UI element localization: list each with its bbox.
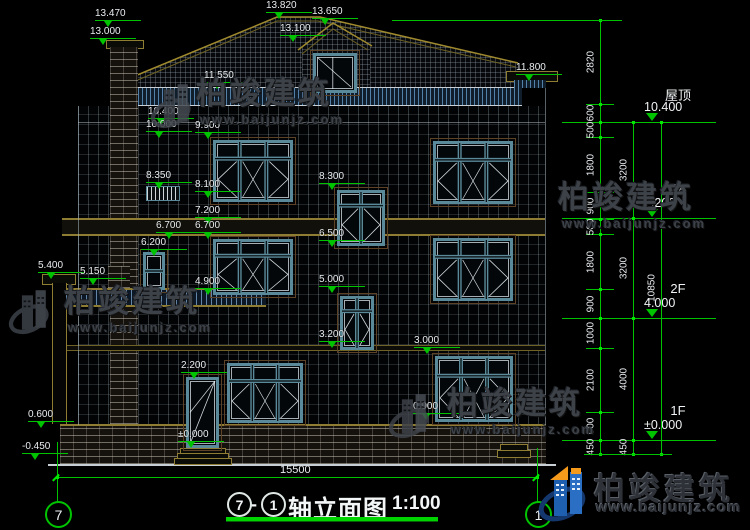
- dim-value: 500: [586, 122, 597, 139]
- dim-value: 900: [586, 198, 597, 215]
- watermark-logo-icon: [388, 384, 438, 442]
- dim-value: 500: [586, 219, 597, 236]
- floor-triangle-icon: [646, 113, 658, 121]
- window: [210, 236, 296, 298]
- title-bubble-1-label: 1: [270, 497, 278, 513]
- floor-triangle-icon: [646, 209, 658, 217]
- dim-node: [599, 439, 602, 442]
- dim-node: [660, 121, 663, 124]
- window: [310, 50, 360, 96]
- dim-node: [599, 136, 602, 139]
- louver-vent: [146, 186, 180, 201]
- drawing-scale: 1:100: [392, 493, 441, 515]
- window: [432, 353, 516, 425]
- dim-value: 900: [586, 418, 597, 435]
- title-axis-bubble-1: 1: [261, 492, 286, 517]
- elevation-drawing-canvas: 13.47013.00013.82013.65013.10011.55011.8…: [0, 0, 750, 530]
- window: [224, 360, 306, 426]
- elevation-line: [90, 38, 136, 39]
- elevation-value: 13.000: [90, 27, 136, 37]
- title-bubble-7-label: 7: [236, 497, 244, 513]
- dim-node: [599, 347, 602, 350]
- elevation-line: [95, 20, 141, 21]
- dim-node: [599, 103, 602, 106]
- belt-course-2f: [62, 345, 545, 351]
- axis-bubble-7-label: 7: [55, 507, 63, 523]
- dim-line: [392, 20, 622, 21]
- right-step-2: [497, 450, 531, 458]
- floor-label: 1F: [640, 403, 716, 418]
- elevation-marker: 13.820: [266, 1, 312, 19]
- window: [210, 137, 296, 205]
- facade-right-edge: [545, 88, 546, 425]
- dim-chain-line: [661, 122, 662, 454]
- title-axis-bubble-7: 7: [227, 492, 252, 517]
- dim-value: 900: [586, 296, 597, 313]
- dim-value: 2820: [586, 51, 597, 73]
- window: [430, 138, 516, 207]
- dim-chain-line: [633, 122, 634, 454]
- dim-line: [584, 454, 672, 455]
- dim-node: [599, 121, 602, 124]
- floor-triangle-icon: [646, 431, 658, 439]
- floor-triangle-icon: [646, 309, 658, 317]
- axis-bubble-7: 7: [45, 501, 72, 528]
- dim-node: [56, 476, 59, 479]
- belt-course-3f: [62, 218, 545, 236]
- dim-line: [57, 477, 538, 478]
- floor-elevation: 10.400: [644, 100, 682, 114]
- dim-value: 450: [586, 439, 597, 456]
- right-parapet: [514, 80, 546, 88]
- elevation-triangle-icon: [37, 422, 45, 428]
- dim-value: 2100: [586, 369, 597, 391]
- elevation-marker: 13.470: [95, 9, 141, 27]
- dim-node: [632, 121, 635, 124]
- floor-level-line: [562, 318, 716, 319]
- dim-node: [599, 288, 602, 291]
- elevation-triangle-icon: [31, 454, 39, 460]
- dim-node: [632, 217, 635, 220]
- elevation-value: 0.600: [28, 410, 74, 420]
- brand-logo-url: www.baijunjz.com: [596, 499, 741, 516]
- eave-soffit-line: [78, 122, 545, 123]
- entry-door: [183, 374, 222, 451]
- dim-chain-line: [600, 20, 601, 454]
- facade-left-edge: [78, 106, 79, 425]
- elevation-value: 13.470: [95, 9, 141, 19]
- elevation-triangle-icon: [104, 21, 112, 27]
- base-masonry: [60, 426, 546, 464]
- dim-node: [599, 411, 602, 414]
- floor-label: 3F: [640, 181, 716, 196]
- window: [430, 235, 516, 304]
- elevation-line: [266, 12, 312, 13]
- door-step-3: [174, 458, 232, 465]
- dim-value: 1000: [586, 322, 597, 344]
- elevation-line: [28, 421, 74, 422]
- dim-node: [599, 218, 602, 221]
- watermark-logo-icon: [150, 74, 200, 132]
- window: [334, 187, 388, 249]
- dim-value: 3200: [619, 257, 630, 279]
- dim-node: [599, 317, 602, 320]
- brand-logo-icon: [538, 458, 596, 526]
- watermark-logo-icon: [8, 280, 58, 338]
- window: [140, 249, 168, 293]
- title-underline: [226, 517, 438, 522]
- dim-node: [632, 317, 635, 320]
- dim-value: 450: [619, 439, 630, 456]
- railing-brick-pier: [108, 266, 130, 288]
- dim-value: 1800: [586, 251, 597, 273]
- dim-value: 600: [586, 105, 597, 122]
- overall-width-dimension: 15500: [280, 464, 311, 476]
- elevation-value: 13.820: [266, 1, 312, 11]
- window: [337, 293, 377, 353]
- dim-value: 1800: [586, 154, 597, 176]
- title-dash: -: [251, 494, 257, 515]
- floor-elevation: ±0.000: [644, 418, 682, 432]
- floor-elevation: 7.200: [644, 196, 675, 210]
- dim-value: 10850: [647, 274, 658, 302]
- dim-value: 4000: [619, 368, 630, 390]
- dim-value: 3200: [619, 159, 630, 181]
- dim-node: [599, 191, 602, 194]
- dim-node: [599, 233, 602, 236]
- dim-node: [632, 439, 635, 442]
- elevation-value: 13.650: [312, 7, 358, 17]
